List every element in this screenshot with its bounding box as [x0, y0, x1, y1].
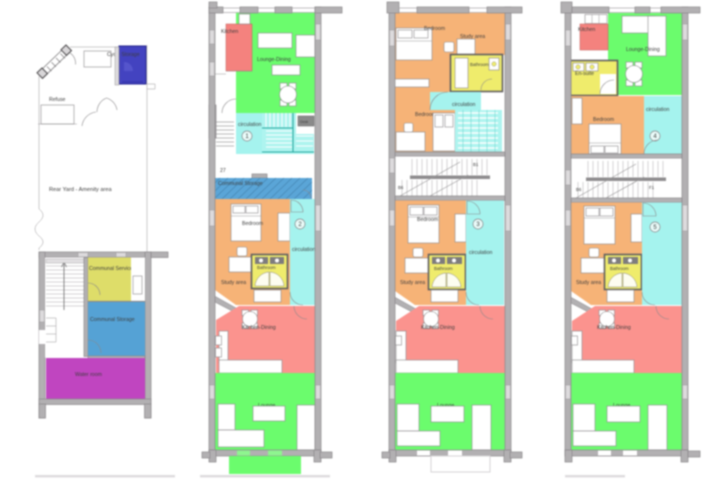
svg-text:Water room: Water room — [75, 372, 102, 378]
svg-text:Lounge-Dining: Lounge-Dining — [257, 57, 291, 63]
svg-text:Study area: Study area — [400, 280, 425, 286]
svg-text:Kitchen: Kitchen — [578, 27, 595, 33]
svg-text:Desk: Desk — [300, 120, 308, 124]
svg-text:Bedroom: Bedroom — [242, 221, 263, 227]
svg-text:Refuse: Refuse — [49, 97, 66, 103]
svg-text:Bedroom: Bedroom — [593, 117, 614, 123]
svg-text:Study area: Study area — [221, 280, 246, 286]
svg-text:Kitchen: Kitchen — [221, 29, 238, 35]
svg-text:B6: B6 — [576, 187, 582, 192]
svg-text:B6: B6 — [398, 185, 404, 190]
svg-text:circulation: circulation — [452, 102, 475, 108]
svg-text:F1: F1 — [649, 185, 655, 190]
svg-text:27: 27 — [220, 168, 226, 174]
svg-text:B1: B1 — [473, 162, 479, 167]
svg-text:Study area: Study area — [576, 280, 601, 286]
svg-text:Communal Storage: Communal Storage — [90, 317, 135, 323]
svg-text:En-suite: En-suite — [575, 71, 594, 77]
svg-text:Kitchen-Dining: Kitchen-Dining — [597, 325, 631, 331]
svg-text:circulation: circulation — [469, 250, 492, 256]
svg-text:Rear Yard - Amenity area: Rear Yard - Amenity area — [49, 187, 112, 193]
svg-text:Bathroom: Bathroom — [434, 266, 453, 271]
svg-text:Bathroom: Bathroom — [257, 265, 276, 270]
svg-text:circulation: circulation — [238, 122, 261, 128]
svg-text:Bathroom: Bathroom — [610, 266, 629, 271]
svg-text:Lounge-Dining: Lounge-Dining — [626, 47, 660, 53]
svg-text:Kitchen-Dining: Kitchen-Dining — [421, 325, 455, 331]
svg-text:Bedroom: Bedroom — [424, 26, 445, 32]
svg-text:circulation: circulation — [646, 107, 669, 113]
svg-text:Kitchen-Dining: Kitchen-Dining — [242, 325, 276, 331]
svg-text:circulation: circulation — [292, 247, 315, 253]
svg-text:Bedroom: Bedroom — [417, 217, 438, 223]
svg-text:Cycle Storage: Cycle Storage — [107, 52, 140, 58]
svg-text:Bathroom: Bathroom — [470, 62, 489, 67]
svg-text:Communal Storage: Communal Storage — [218, 181, 263, 187]
svg-text:Communal Service: Communal Service — [89, 266, 133, 272]
